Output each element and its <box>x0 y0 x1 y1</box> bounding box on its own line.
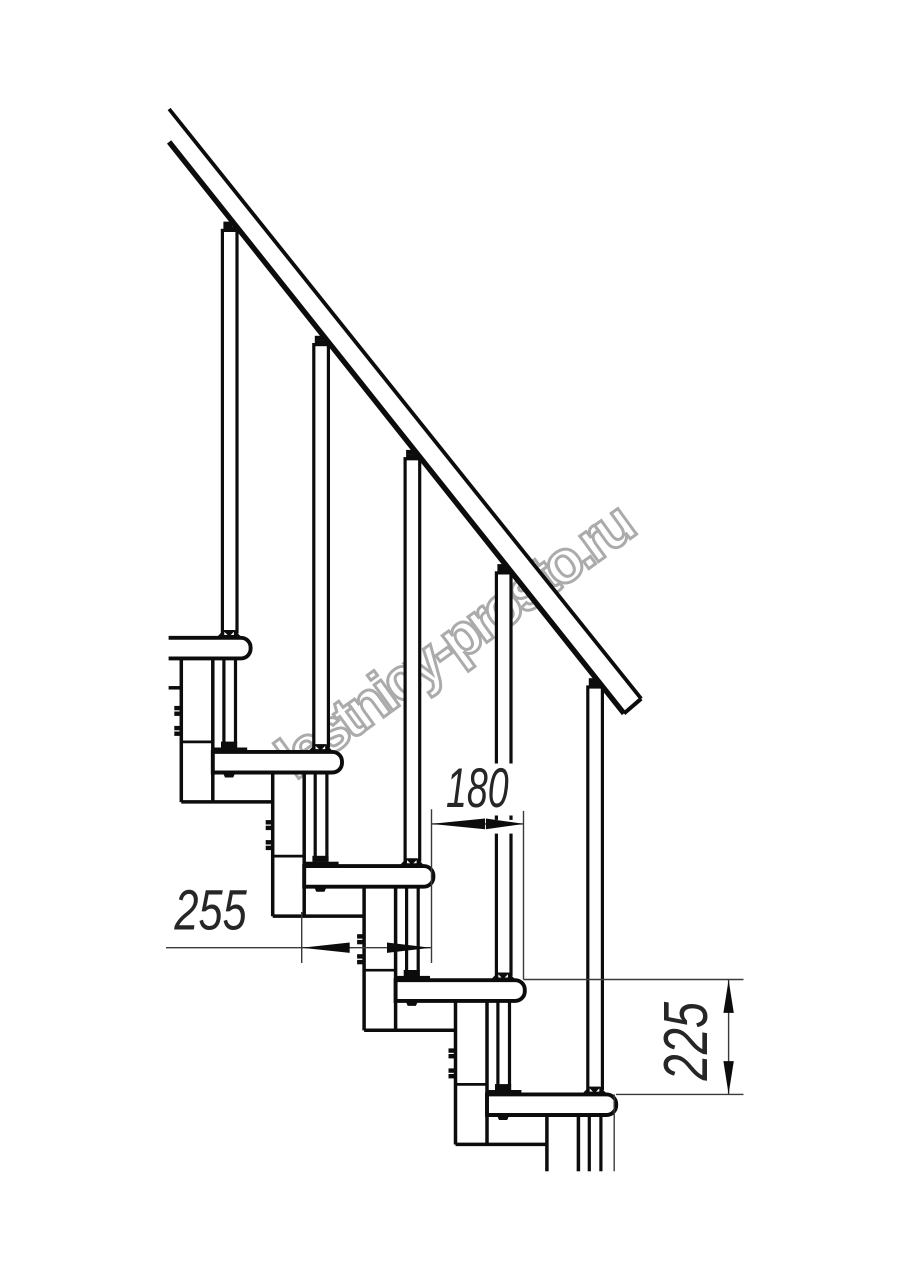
svg-text:225: 225 <box>651 1002 721 1082</box>
svg-text:255: 255 <box>174 878 248 942</box>
svg-text:180: 180 <box>446 758 509 820</box>
